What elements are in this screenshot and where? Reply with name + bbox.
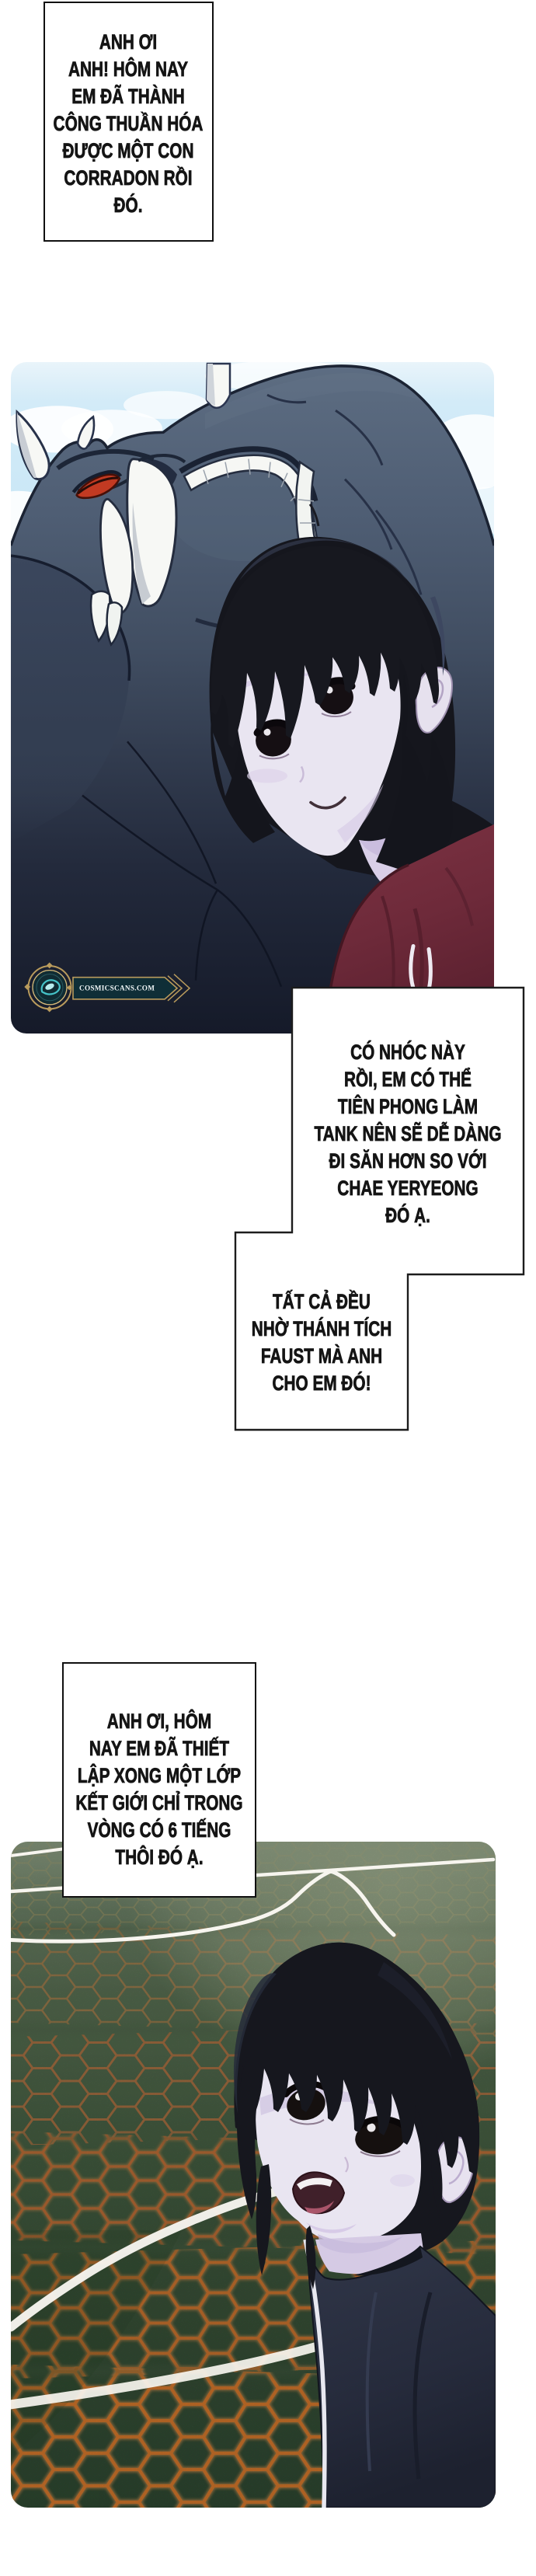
svg-text:COSMICSCANS.COM: COSMICSCANS.COM [79, 985, 155, 992]
